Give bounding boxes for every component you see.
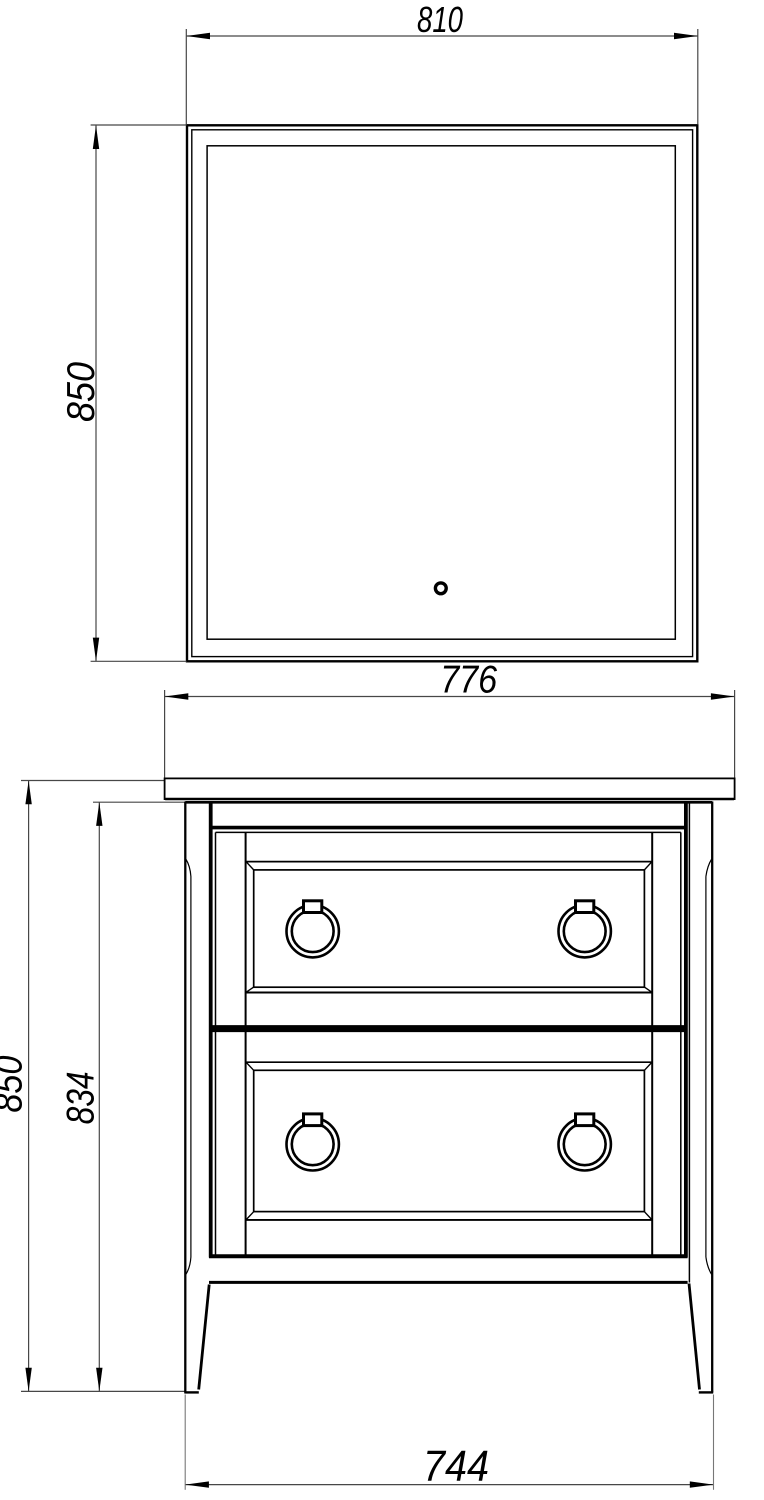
svg-text:834: 834 [60,1071,103,1124]
svg-text:810: 810 [417,0,463,40]
svg-text:850: 850 [0,1055,30,1113]
svg-text:850: 850 [60,361,103,422]
svg-text:744: 744 [423,1442,489,1491]
svg-text:776: 776 [440,659,497,702]
